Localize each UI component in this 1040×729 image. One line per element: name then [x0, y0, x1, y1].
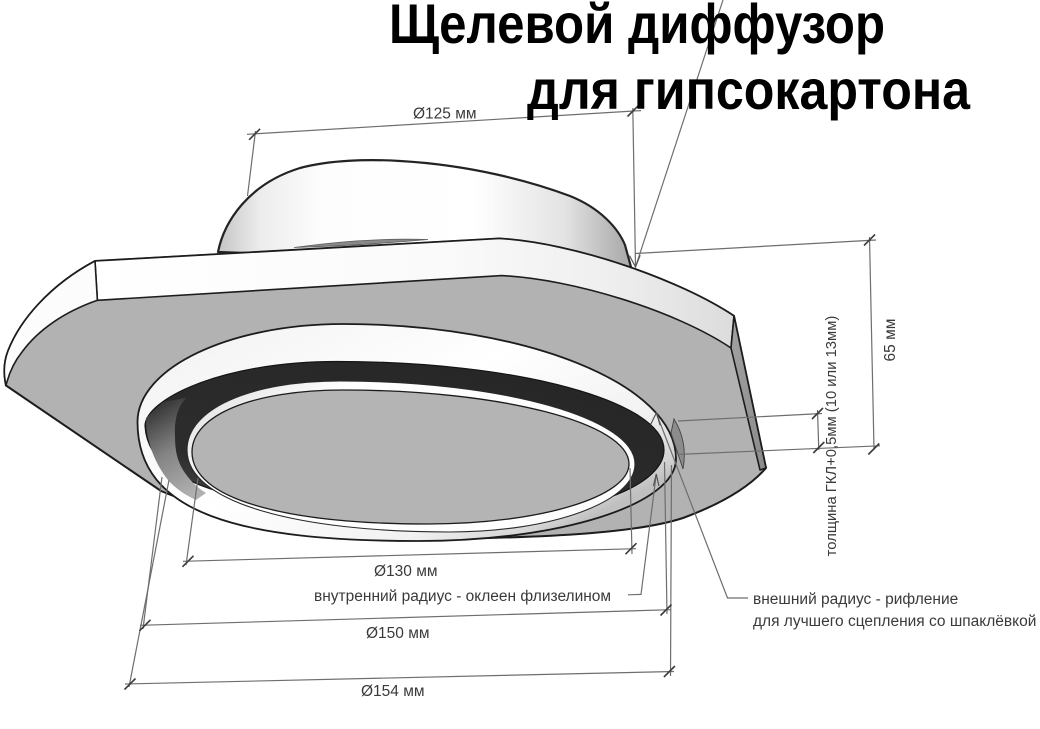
svg-text:для гипсокартона: для гипсокартона — [527, 58, 971, 121]
svg-text:Ø125 мм: Ø125 мм — [413, 106, 477, 123]
svg-text:внутренний радиус - оклеен фли: внутренний радиус - оклеен флизелином — [314, 588, 611, 605]
svg-text:Ø130 мм: Ø130 мм — [374, 563, 438, 580]
svg-text:толщина ГКЛ+0,5мм (10 или 13мм: толщина ГКЛ+0,5мм (10 или 13мм) — [824, 316, 840, 557]
svg-text:Ø154 мм: Ø154 мм — [361, 683, 425, 700]
svg-text:65 мм: 65 мм — [882, 319, 899, 362]
svg-text:внешний радиус - рифление: внешний радиус - рифление — [753, 591, 958, 608]
svg-text:Щелевой диффузор: Щелевой диффузор — [389, 0, 885, 55]
svg-text:для лучшего сцепления со шпакл: для лучшего сцепления со шпаклёвкой — [753, 613, 1036, 630]
svg-text:Ø150 мм: Ø150 мм — [366, 625, 430, 642]
